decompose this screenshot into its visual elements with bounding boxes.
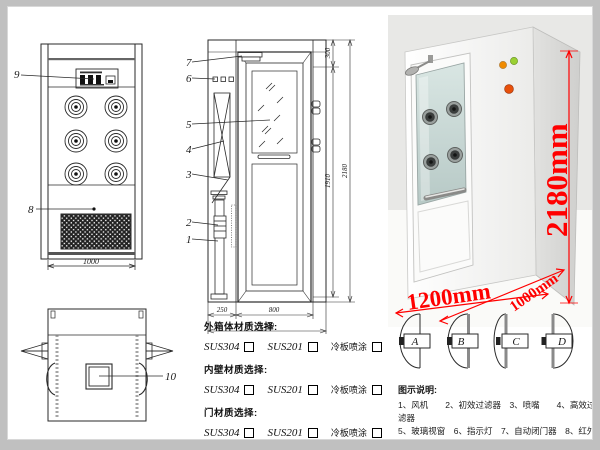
material-checkbox[interactable]	[372, 385, 382, 395]
top-view-drawing: 10	[13, 301, 208, 431]
option-label: 冷板喷涂	[331, 426, 367, 439]
material-group-title: 门材质选择:	[204, 405, 392, 419]
dim-300: 300	[324, 47, 332, 59]
door-type-d-icon: D	[540, 310, 580, 372]
product-photo: 2180mm 1200mm 1000mm	[388, 15, 593, 327]
door-type-icons: A B C	[396, 310, 580, 372]
legend-title: 图示说明:	[398, 383, 593, 396]
callout-5: 5	[186, 119, 192, 131]
material-checkbox[interactable]	[308, 342, 318, 352]
callout-1: 1	[186, 234, 192, 246]
door-type-label: A	[411, 336, 419, 348]
dim-800: 800	[269, 306, 280, 314]
amber-button	[499, 61, 506, 68]
option-label: 冷板喷涂	[331, 340, 367, 353]
door-closer	[238, 53, 262, 62]
material-checkbox[interactable]	[244, 428, 254, 438]
red-button	[505, 85, 514, 94]
green-button	[510, 57, 517, 64]
legend-line-2: 5、玻璃视窗 6、指示灯 7、自动闭门器 8、红外线感应器	[398, 425, 593, 440]
material-group-title: 内壁材质选择:	[204, 362, 392, 376]
callout-9: 9	[14, 69, 20, 81]
option-label: SUS304	[204, 341, 239, 353]
material-selection: 外箱体材质选择: SUS304 SUS201 冷板喷涂 内壁材质选择: SUS3…	[204, 319, 392, 440]
material-group-door: 门材质选择: SUS304 SUS201 冷板喷涂	[204, 405, 392, 439]
dim-1910: 1910	[324, 174, 332, 189]
dim-2180: 2180	[341, 164, 349, 179]
option-label: SUS201	[267, 384, 302, 396]
option-label: SUS304	[204, 427, 239, 439]
top-trim-line	[48, 58, 135, 60]
option-label: SUS201	[267, 341, 302, 353]
door-type-label: C	[512, 336, 520, 348]
material-checkbox[interactable]	[372, 428, 382, 438]
material-options-row: SUS304 SUS201 冷板喷涂	[204, 426, 392, 439]
dim-1000: 1000	[83, 257, 99, 266]
dim-250: 250	[217, 306, 228, 314]
callout-2: 2	[186, 217, 192, 229]
callout-8: 8	[28, 204, 34, 216]
material-group-cabinet: 外箱体材质选择: SUS304 SUS201 冷板喷涂	[204, 319, 392, 353]
option-label: 冷板喷涂	[331, 383, 367, 396]
door-type-a-icon: A	[396, 310, 436, 372]
door-type-b-icon: B	[444, 310, 484, 372]
callout-10: 10	[165, 371, 177, 383]
material-checkbox[interactable]	[308, 428, 318, 438]
material-options-row: SUS304 SUS201 冷板喷涂	[204, 383, 392, 396]
exhaust-grille	[61, 214, 131, 249]
option-label: SUS201	[267, 427, 302, 439]
option-label: SUS304	[204, 384, 239, 396]
material-checkbox[interactable]	[244, 342, 254, 352]
front-view-drawing: 9 8 1000	[8, 33, 158, 283]
legend: 图示说明: 1、风机 2、初效过滤器 3、喷嘴 4、高效过滤器 5、玻璃视窗 6…	[398, 383, 593, 440]
callout-7: 7	[186, 57, 192, 69]
material-group-inner-wall: 内壁材质选择: SUS304 SUS201 冷板喷涂	[204, 362, 392, 396]
material-checkbox[interactable]	[372, 342, 382, 352]
material-options-row: SUS304 SUS201 冷板喷涂	[204, 340, 392, 353]
photo-dim-height: 2180mm	[539, 123, 574, 237]
material-group-title: 外箱体材质选择:	[204, 319, 392, 333]
legend-line-1: 1、风机 2、初效过滤器 3、喷嘴 4、高效过滤器	[398, 399, 593, 425]
door-type-c-icon: C	[492, 310, 532, 372]
door-type-label: B	[458, 336, 465, 348]
callout-4: 4	[186, 144, 192, 156]
callout-6: 6	[186, 73, 192, 85]
door-type-label: D	[557, 336, 566, 348]
callout-3: 3	[185, 169, 192, 181]
page: 9 8 1000	[0, 0, 600, 450]
drawing-sheet: 9 8 1000	[7, 6, 593, 440]
material-checkbox[interactable]	[308, 385, 318, 395]
material-checkbox[interactable]	[244, 385, 254, 395]
